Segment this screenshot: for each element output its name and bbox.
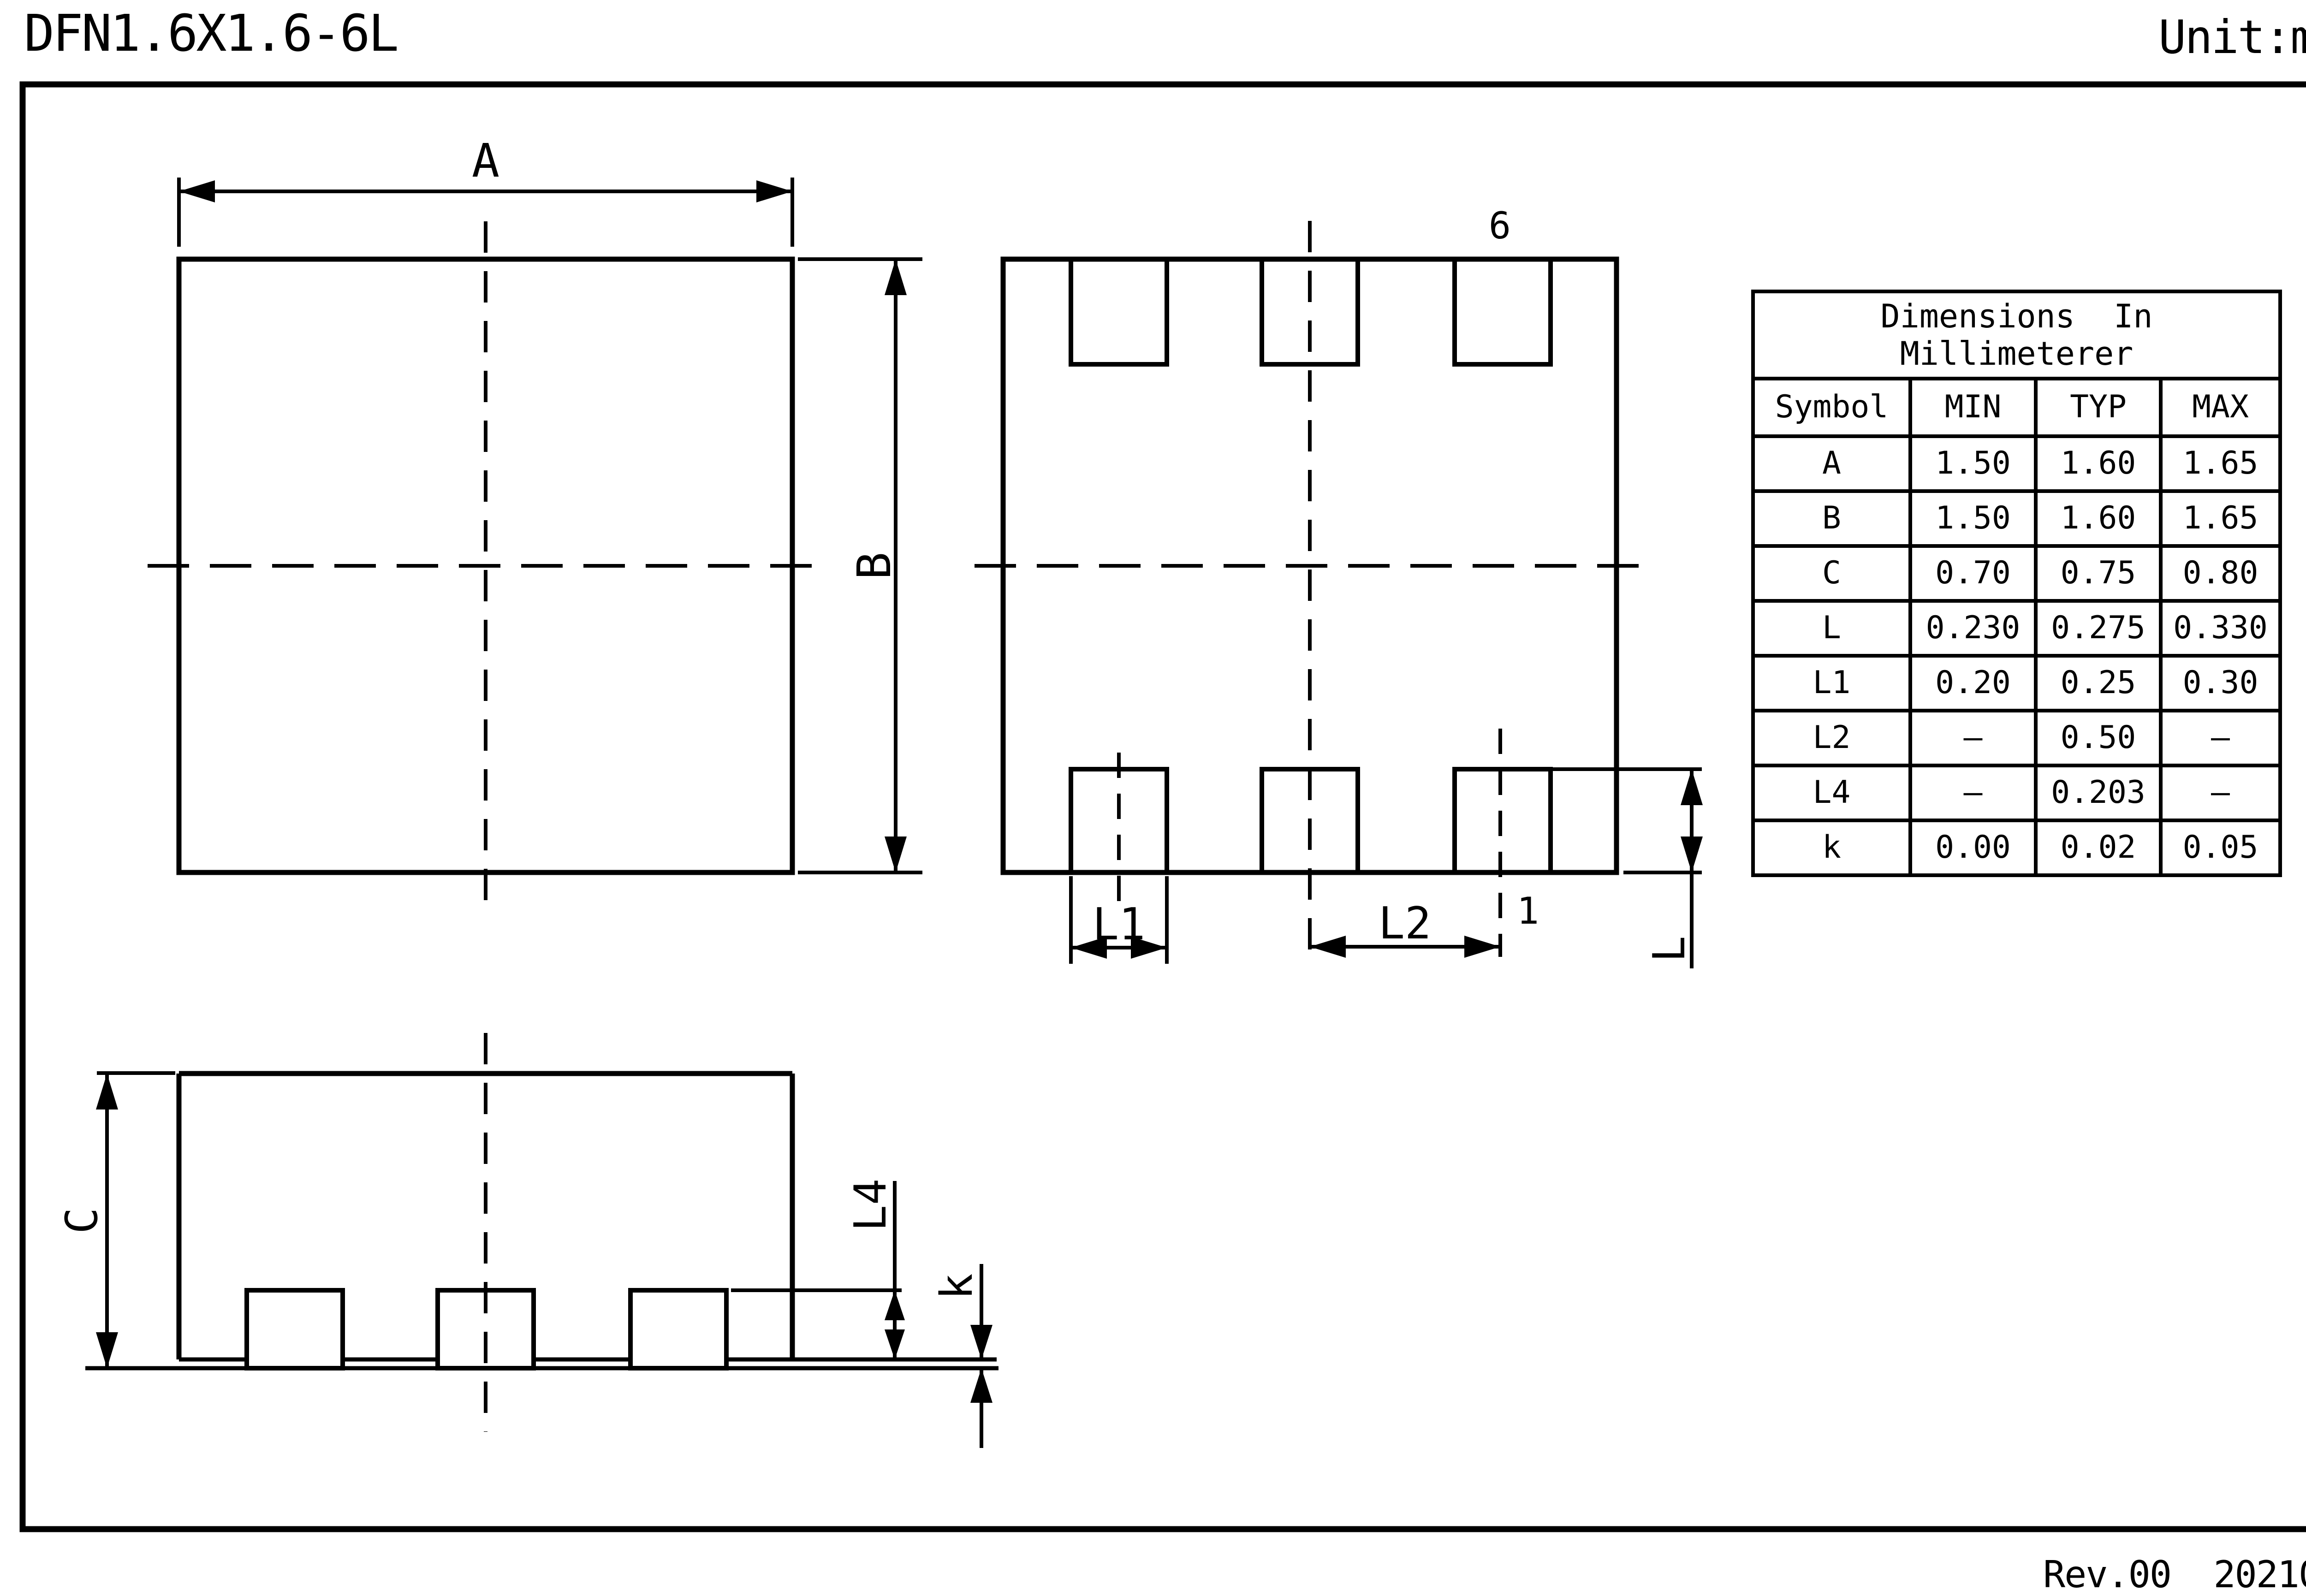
- dim-c-arrow-top: [96, 1074, 118, 1109]
- table-title-cell: Dimensions In Millimeterer: [1753, 291, 2280, 379]
- cell-symbol: L: [1753, 601, 1910, 656]
- table-row: L4 – 0.203 –: [1753, 765, 2280, 820]
- cell-min: 1.50: [1910, 491, 2036, 546]
- dim-k-label: k: [932, 1273, 982, 1299]
- cell-typ: 0.275: [2036, 601, 2161, 656]
- col-header-max: MAX: [2161, 379, 2280, 436]
- cell-typ: 0.50: [2036, 711, 2161, 765]
- cell-symbol: L4: [1753, 765, 1910, 820]
- cell-symbol: C: [1753, 546, 1910, 601]
- cell-symbol: L2: [1753, 711, 1910, 765]
- cell-symbol: A: [1753, 436, 1910, 491]
- table-row: k 0.00 0.02 0.05: [1753, 820, 2280, 875]
- dim-a-label: A: [472, 134, 499, 188]
- cell-typ: 1.60: [2036, 491, 2161, 546]
- dim-a-arrow-left: [179, 180, 215, 202]
- cell-typ: 0.75: [2036, 546, 2161, 601]
- cell-max: 0.05: [2161, 820, 2280, 875]
- cell-typ: 0.203: [2036, 765, 2161, 820]
- dim-b-arrow-top: [885, 259, 907, 295]
- cell-min: 0.70: [1910, 546, 2036, 601]
- table-title-line2: Millimeterer: [1755, 335, 2278, 373]
- pin-6-label: 6: [1489, 204, 1511, 247]
- cell-typ: 0.02: [2036, 820, 2161, 875]
- cell-symbol: L1: [1753, 656, 1910, 711]
- dim-l2-arrow-right: [1464, 936, 1500, 958]
- table-row: L2 – 0.50 –: [1753, 711, 2280, 765]
- dim-b-label: B: [847, 552, 901, 580]
- pad-top-right: [1455, 259, 1551, 364]
- dimension-table: Dimensions In Millimeterer Symbol MIN TY…: [1751, 290, 2282, 877]
- cell-typ: 0.25: [2036, 656, 2161, 711]
- cell-max: 0.330: [2161, 601, 2280, 656]
- cell-max: –: [2161, 711, 2280, 765]
- side-pad-right: [630, 1290, 726, 1368]
- side-pad-left: [247, 1290, 343, 1368]
- dim-k-arrow-up: [970, 1368, 993, 1403]
- dim-l1-label: L1: [1093, 899, 1145, 950]
- dim-l-arrow-top: [1681, 769, 1703, 805]
- table-row: A 1.50 1.60 1.65: [1753, 436, 2280, 491]
- dim-l4-arrow-top: [885, 1290, 905, 1320]
- dim-l-label: L: [1644, 936, 1695, 962]
- dim-c-label: C: [57, 1207, 107, 1234]
- bottom-pad-view: 6 1 L1 L2 L: [975, 204, 1703, 968]
- dim-l2-label: L2: [1379, 898, 1431, 949]
- dim-b-arrow-bottom: [885, 837, 907, 872]
- table-row: L1 0.20 0.25 0.30: [1753, 656, 2280, 711]
- package-outline-side: [179, 1074, 792, 1359]
- col-header-typ: TYP: [2036, 379, 2161, 436]
- cell-symbol: B: [1753, 491, 1910, 546]
- cell-max: 1.65: [2161, 436, 2280, 491]
- drawing-sheet: DFN1.6X1.6-6L Unit:mm Rev.00 202107 A B: [0, 0, 2306, 1595]
- cell-symbol: k: [1753, 820, 1910, 875]
- dim-a-arrow-right: [756, 180, 792, 202]
- table-row: C 0.70 0.75 0.80: [1753, 546, 2280, 601]
- cell-min: 0.00: [1910, 820, 2036, 875]
- top-view: A B: [148, 134, 922, 913]
- cell-max: 1.65: [2161, 491, 2280, 546]
- table-row: L 0.230 0.275 0.330: [1753, 601, 2280, 656]
- pin-1-label: 1: [1517, 890, 1539, 932]
- col-header-symbol: Symbol: [1753, 379, 1910, 436]
- cell-max: 0.30: [2161, 656, 2280, 711]
- cell-max: –: [2161, 765, 2280, 820]
- cell-typ: 1.60: [2036, 436, 2161, 491]
- dim-l2-arrow-left: [1310, 936, 1346, 958]
- cell-min: 1.50: [1910, 436, 2036, 491]
- table-title-line1: Dimensions In: [1755, 298, 2278, 335]
- dim-c-arrow-bottom: [96, 1332, 118, 1368]
- side-view: C L4 k: [57, 1033, 998, 1448]
- cell-min: 0.230: [1910, 601, 2036, 656]
- cell-max: 0.80: [2161, 546, 2280, 601]
- dim-l-arrow-bottom: [1681, 837, 1703, 872]
- cell-min: –: [1910, 711, 2036, 765]
- dim-l4-arrow-bottom: [885, 1329, 905, 1359]
- dim-l4-label: L4: [845, 1179, 896, 1231]
- cell-min: –: [1910, 765, 2036, 820]
- col-header-min: MIN: [1910, 379, 2036, 436]
- cell-min: 0.20: [1910, 656, 2036, 711]
- dim-l-extension-lines: [1551, 769, 1702, 872]
- pad-bottom-right: [1455, 769, 1551, 872]
- pad-top-left: [1071, 259, 1167, 364]
- dim-k-arrow-down: [970, 1325, 993, 1359]
- table-row: B 1.50 1.60 1.65: [1753, 491, 2280, 546]
